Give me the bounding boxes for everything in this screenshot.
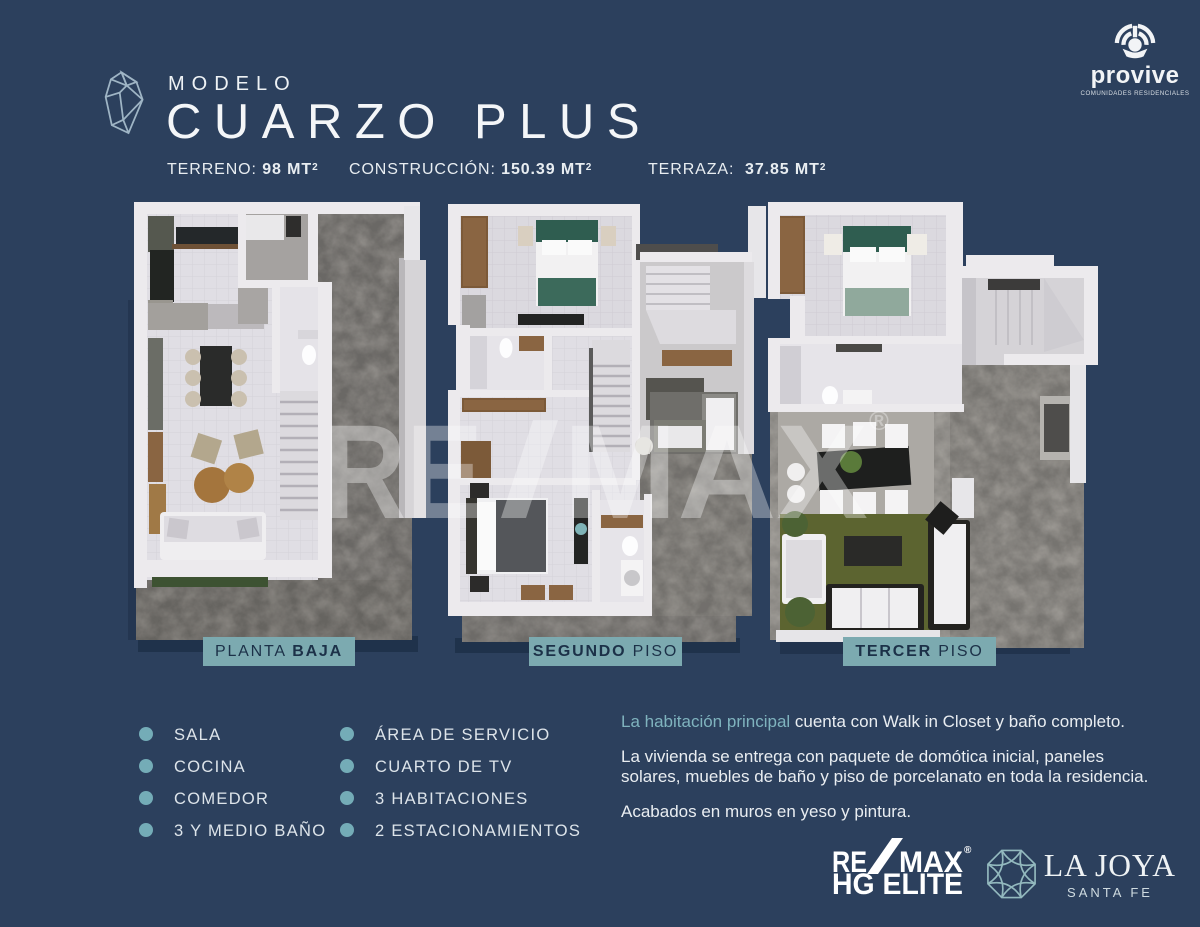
svg-text:®: ®: [964, 845, 972, 856]
svg-text:HG ELITE: HG ELITE: [832, 868, 963, 898]
svg-text:MAX: MAX: [563, 398, 868, 530]
svg-text:RE: RE: [323, 398, 483, 530]
svg-text:®: ®: [869, 406, 889, 436]
